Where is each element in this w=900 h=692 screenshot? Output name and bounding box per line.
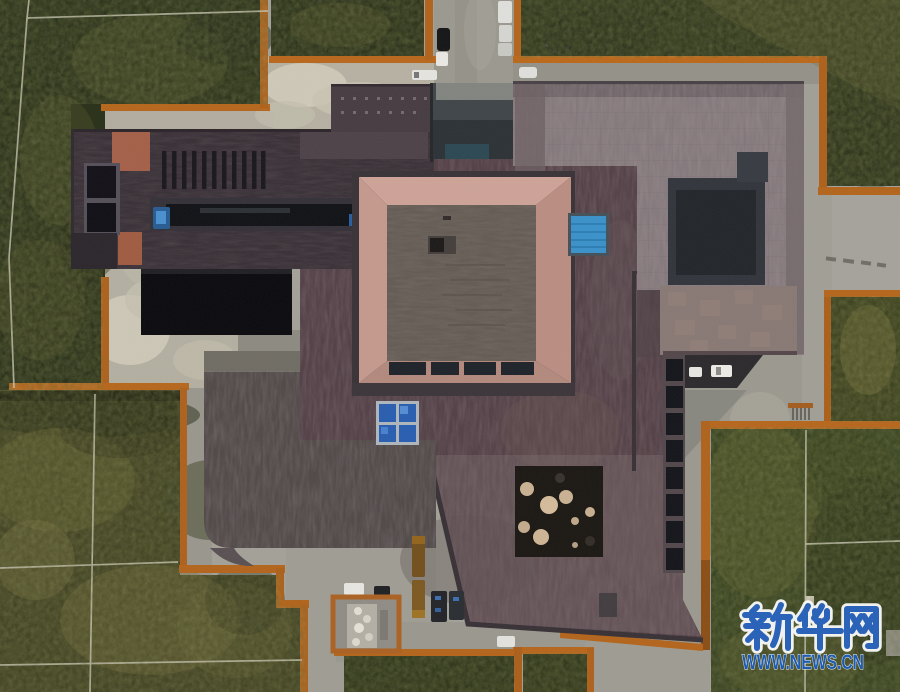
svg-text:WWW.NEWS.CN: WWW.NEWS.CN [742,650,864,674]
